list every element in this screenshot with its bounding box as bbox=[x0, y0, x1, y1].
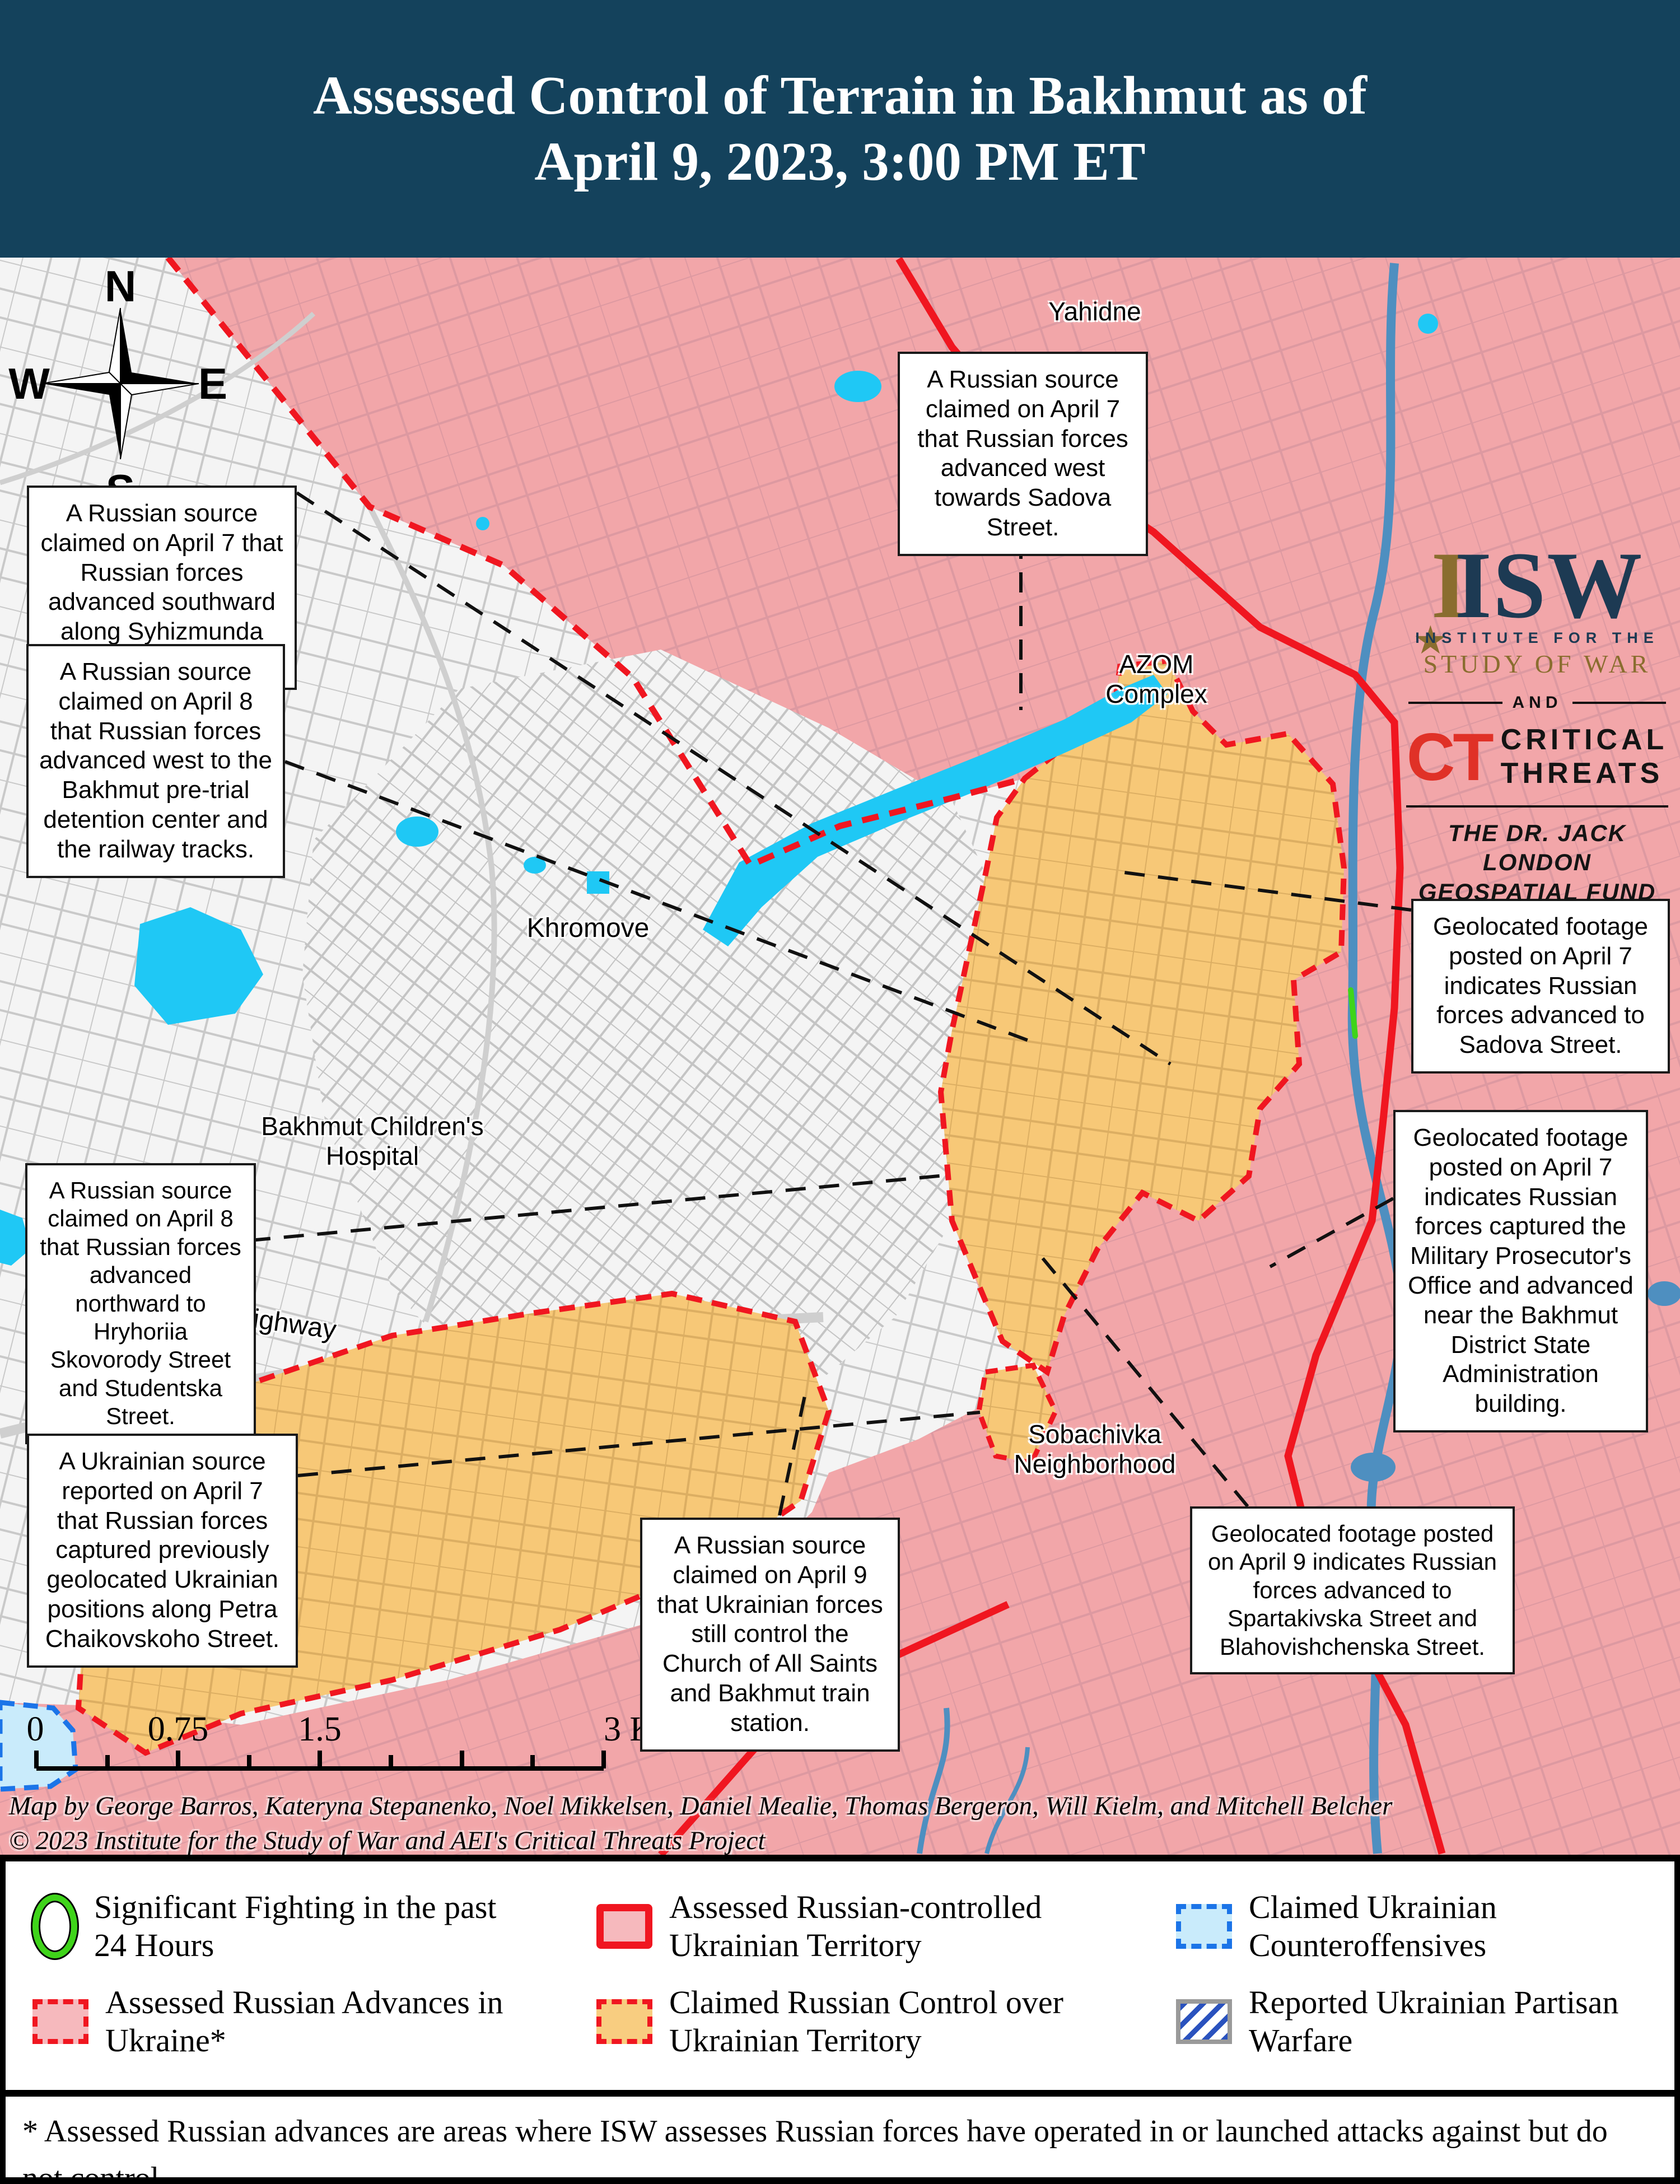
callout-chaikovskoho: A Ukrainian source reported on April 7 t… bbox=[27, 1434, 298, 1668]
counteroffensive-icon bbox=[1176, 1904, 1232, 1949]
scale-075: 0.75 bbox=[148, 1710, 209, 1748]
claimed-russian-control-icon bbox=[596, 1999, 652, 2044]
callout-church-all-saints: A Russian source claimed on April 9 that… bbox=[640, 1518, 900, 1752]
legend-significant-fighting: Significant Fighting in the past 24 Hour… bbox=[32, 1888, 525, 1965]
isw-bakhmut-map-page: Assessed Control of Terrain in Bakhmut a… bbox=[0, 0, 1680, 2184]
geospatial-fund-text: THE DR. JACK LONDON GEOSPATIAL FUND bbox=[1403, 819, 1672, 907]
partisan-warfare-icon bbox=[1176, 1999, 1232, 2044]
page-title-line2: April 9, 2023, 3:00 PM ET bbox=[534, 129, 1145, 195]
header: Assessed Control of Terrain in Bakhmut a… bbox=[0, 0, 1680, 258]
compass-e: E bbox=[198, 359, 227, 408]
callout-skovorody: A Russian source claimed on April 8 that… bbox=[25, 1163, 256, 1444]
map-attribution-line2: © 2023 Institute for the Study of War an… bbox=[9, 1826, 765, 1856]
legend-russian-controlled: Assessed Russian-controlled Ukrainian Te… bbox=[596, 1888, 1134, 1965]
page-title-line1: Assessed Control of Terrain in Bakhmut a… bbox=[313, 63, 1367, 129]
map-attribution-line1: Map by George Barros, Kateryna Stepanenk… bbox=[9, 1791, 1392, 1821]
russian-controlled-icon bbox=[596, 1904, 652, 1949]
logo-rule bbox=[1406, 805, 1668, 808]
scale-15: 1.5 bbox=[298, 1710, 342, 1748]
label-yahidne: Yahidne bbox=[1002, 297, 1187, 326]
footnote-text: * Assessed Russian advances are areas wh… bbox=[22, 2108, 1652, 2184]
legend-partisan-warfare: Reported Ukrainian Partisan Warfare bbox=[1176, 1984, 1658, 2060]
label-sobachivka: Sobachivka Neighborhood bbox=[963, 1420, 1226, 1479]
isw-ct-logo: IISW ★ INSTITUTE FOR THE STUDY OF WAR AN… bbox=[1403, 538, 1672, 907]
critical-threats-logo: CT CRITICAL THREATS bbox=[1403, 724, 1672, 791]
legend-russian-advances: Assessed Russian Advances in Ukraine* bbox=[32, 1984, 525, 2060]
callout-sadova-claim: A Russian source claimed on April 7 that… bbox=[898, 352, 1148, 556]
isw-study-of-war-text: STUDY OF WAR bbox=[1403, 649, 1672, 679]
scale-0: 0 bbox=[27, 1710, 44, 1748]
logo-and-separator: AND bbox=[1408, 693, 1666, 712]
legend-and-footnote: Significant Fighting in the past 24 Hour… bbox=[0, 1855, 1680, 2184]
legend-footnote-divider bbox=[6, 2090, 1674, 2097]
label-khromove: Khromove bbox=[493, 913, 683, 944]
ct-icon: CT bbox=[1407, 727, 1492, 787]
legend-claimed-russian-control: Claimed Russian Control over Ukrainian T… bbox=[596, 1984, 1134, 2060]
callout-military-prosecutor: Geolocated footage posted on April 7 ind… bbox=[1393, 1110, 1648, 1432]
russian-advances-icon bbox=[32, 1999, 88, 2044]
isw-institute-text: INSTITUTE FOR THE bbox=[1403, 629, 1672, 647]
legend-ukrainian-counteroffensives: Claimed Ukrainian Counteroffensives bbox=[1176, 1888, 1658, 1965]
compass-n: N bbox=[105, 262, 136, 311]
compass-w: W bbox=[8, 359, 50, 408]
label-children-hospital: Bakhmut Children's Hospital bbox=[241, 1112, 504, 1171]
map-canvas: N S W E 0 0.75 1.5 3 Kilometers Yahidne … bbox=[0, 258, 1680, 1855]
callout-spartakivska: Geolocated footage posted on April 9 ind… bbox=[1190, 1506, 1515, 1674]
callout-detention-center: A Russian source claimed on April 8 that… bbox=[26, 644, 285, 878]
significant-fighting-icon bbox=[32, 1894, 77, 1958]
callout-sadova-geolocated: Geolocated footage posted on April 7 ind… bbox=[1411, 899, 1670, 1074]
label-azom-complex: AZOM Complex bbox=[1064, 650, 1249, 709]
